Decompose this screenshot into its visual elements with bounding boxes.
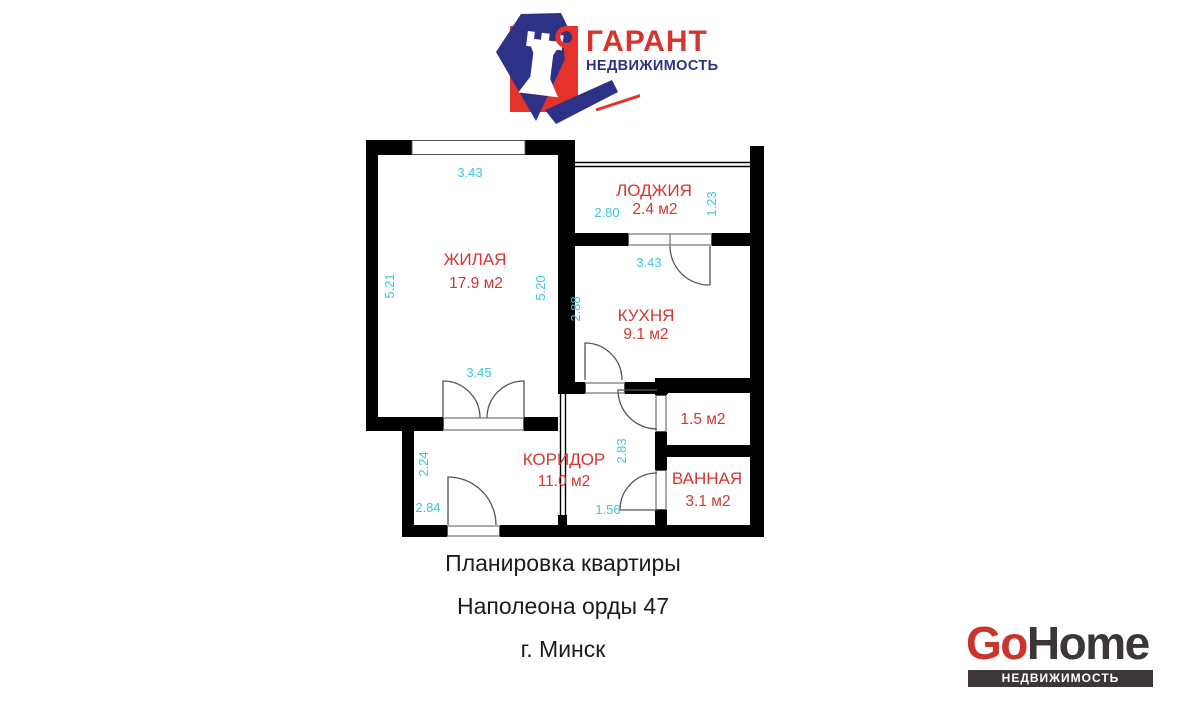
bathroom-door-threshold: [656, 471, 666, 510]
dimension-label: 5.21: [382, 273, 397, 298]
entry-door-threshold: [448, 526, 500, 536]
dimension-label: 3.43: [457, 165, 482, 180]
garant-logo-text: ГАРАНТ НЕДВИЖИМОСТЬ: [586, 26, 806, 75]
living-room-window: [412, 141, 525, 155]
caption: Планировка квартиры Наполеона орды 47 г.…: [363, 551, 763, 680]
room-label: ВАННАЯ: [672, 469, 742, 488]
room-label: 1.5 м2: [680, 411, 725, 428]
room-label: ЛОДЖИЯ: [616, 181, 692, 200]
gohome-go: Go: [966, 617, 1027, 669]
kitchen-door: [585, 343, 622, 380]
room-label: 2.4 м2: [632, 201, 677, 218]
room-label: 17.9 м2: [449, 275, 503, 292]
caption-city: г. Минск: [363, 637, 763, 661]
double-door-right-leaf: [487, 381, 524, 418]
room-label: 9.1 м2: [623, 326, 668, 343]
room-label: КОРИДОР: [523, 450, 606, 469]
dimension-label: 1.56: [595, 502, 620, 517]
garant-brand: ГАРАНТ: [586, 26, 806, 58]
dimension-label: 5.20: [533, 275, 548, 300]
entry-door: [448, 477, 496, 525]
gohome-wordmark: GoHome: [966, 618, 1166, 668]
room-label: 3.1 м2: [685, 493, 730, 510]
dimension-label: 2.84: [415, 500, 440, 515]
room-label: КУХНЯ: [618, 306, 675, 325]
balcony-door: [670, 246, 710, 285]
dimension-label: 2.83: [614, 438, 629, 463]
double-door-threshold: [444, 418, 524, 430]
dimension-label: 2.80: [594, 205, 619, 220]
caption-address: Наполеона орды 47: [363, 594, 763, 618]
dimension-label: 2.24: [416, 451, 431, 476]
dimension-label: 3.43: [636, 255, 661, 270]
gohome-logo: GoHome НЕДВИЖИМОСТЬ БЕЛАРУСИ: [966, 618, 1166, 687]
caption-title: Планировка квартиры: [363, 551, 763, 575]
bathroom-door: [620, 473, 657, 510]
storage-door-threshold: [656, 396, 666, 432]
gohome-home: Home: [1027, 617, 1149, 669]
storage-door: [618, 390, 657, 429]
dimension-label: 3.45: [466, 365, 491, 380]
double-door-left-leaf: [443, 381, 480, 418]
floorplan: ЖИЛАЯ17.9 м2ЛОДЖИЯ2.4 м2КУХНЯ9.1 м2КОРИД…: [360, 134, 770, 540]
room-label: 11.0 м2: [538, 473, 591, 490]
garant-subtitle: НЕДВИЖИМОСТЬ: [586, 58, 806, 75]
dimension-label: 2.88: [568, 296, 583, 321]
dimension-label: 1.23: [704, 191, 719, 216]
room-label: ЖИЛАЯ: [444, 250, 507, 269]
gohome-tagline: НЕДВИЖИМОСТЬ БЕЛАРУСИ: [968, 670, 1153, 687]
